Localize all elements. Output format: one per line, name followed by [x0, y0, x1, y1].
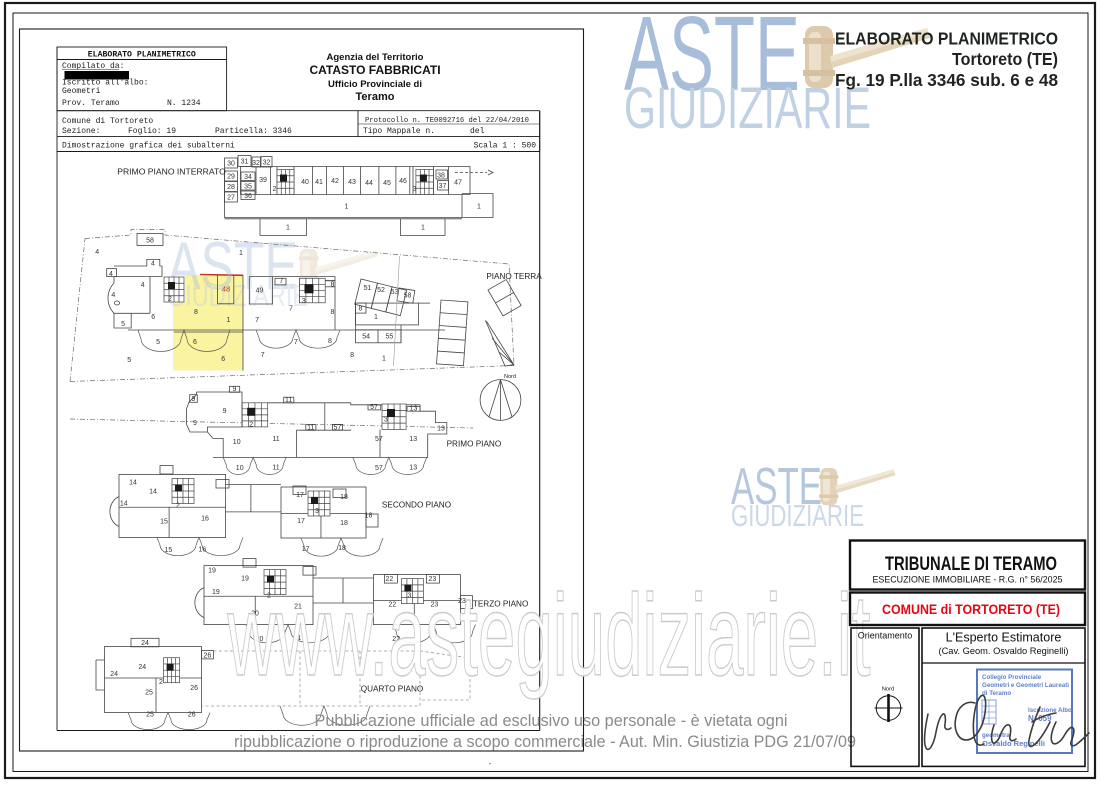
svg-text:57: 57: [375, 465, 383, 472]
svg-text:57: 57: [375, 436, 383, 443]
svg-text:Tipo Mappale n.: Tipo Mappale n.: [363, 127, 435, 136]
svg-text:4: 4: [111, 292, 115, 299]
svg-text:28: 28: [227, 184, 235, 191]
svg-text:ELABORATO PLANIMETRICO: ELABORATO PLANIMETRICO: [88, 51, 196, 60]
svg-text:57: 57: [370, 404, 378, 411]
svg-text:7: 7: [294, 339, 298, 346]
svg-text:Geometri: Geometri: [62, 87, 101, 96]
svg-text:5: 5: [127, 357, 131, 364]
svg-text:48: 48: [222, 285, 230, 294]
svg-text:11: 11: [307, 424, 314, 431]
svg-text:11: 11: [272, 436, 279, 443]
svg-text:2: 2: [168, 296, 172, 303]
svg-text:44: 44: [365, 180, 373, 187]
svg-text:4: 4: [141, 282, 145, 289]
svg-text:11: 11: [285, 397, 292, 404]
svg-text:Comune di Tortoreto: Comune di Tortoreto: [62, 117, 153, 126]
svg-text:N. 1234: N. 1234: [167, 99, 201, 108]
svg-text:31: 31: [241, 159, 249, 166]
svg-text:40: 40: [301, 179, 309, 186]
svg-text:9: 9: [193, 420, 197, 427]
svg-text:19: 19: [208, 568, 216, 575]
svg-text:32: 32: [252, 160, 260, 167]
svg-text:3: 3: [384, 417, 388, 424]
svg-text:5: 5: [156, 339, 160, 346]
svg-text:18: 18: [340, 494, 348, 501]
svg-text:1: 1: [239, 250, 243, 257]
svg-text:Orientamento: Orientamento: [858, 631, 913, 641]
svg-text:7: 7: [261, 352, 265, 359]
svg-text:PRIMO PIANO: PRIMO PIANO: [447, 440, 502, 449]
svg-text:TRIBUNALE DI TERAMO: TRIBUNALE DI TERAMO: [885, 553, 1057, 575]
svg-text:Tortoreto (TE): Tortoreto (TE): [952, 49, 1058, 69]
svg-text:15: 15: [165, 547, 173, 554]
svg-text:24: 24: [141, 640, 149, 647]
svg-text:GIUDIZIARIE: GIUDIZIARIE: [624, 76, 871, 141]
svg-text:4: 4: [109, 271, 113, 278]
svg-text:10: 10: [233, 439, 241, 446]
svg-text:30: 30: [227, 161, 235, 168]
svg-text:49: 49: [256, 288, 264, 295]
svg-text:7: 7: [279, 278, 283, 285]
svg-text:PIANO TERRA: PIANO TERRA: [486, 272, 542, 281]
svg-text:Sezione:: Sezione:: [62, 127, 100, 136]
svg-text:Geometri e Geometri Laureati: Geometri e Geometri Laureati: [982, 682, 1069, 689]
svg-text:1: 1: [345, 204, 349, 211]
svg-text:26: 26: [188, 711, 196, 718]
svg-text:GIUDIZIARIE: GIUDIZIARIE: [167, 279, 308, 313]
svg-text:27: 27: [227, 195, 235, 202]
svg-text:5: 5: [121, 321, 125, 328]
svg-text:di Teramo: di Teramo: [982, 690, 1011, 697]
svg-text:25: 25: [145, 690, 153, 697]
svg-text:3: 3: [302, 298, 306, 305]
svg-text:16: 16: [201, 516, 209, 523]
svg-text:3: 3: [413, 186, 417, 193]
svg-text:9: 9: [223, 408, 227, 415]
svg-text:Teramo: Teramo: [356, 91, 395, 103]
svg-text:3: 3: [315, 508, 319, 515]
svg-text:57: 57: [334, 424, 342, 431]
svg-text:8: 8: [350, 352, 354, 359]
svg-text:Pubblicazione ufficiale ad esc: Pubblicazione ufficiale ad esclusivo uso…: [315, 711, 788, 730]
svg-text:Agenzia del Territorio: Agenzia del Territorio: [327, 52, 424, 63]
svg-text:1: 1: [374, 314, 378, 321]
svg-text:47: 47: [454, 180, 462, 187]
svg-text:8: 8: [331, 282, 335, 289]
svg-text:10: 10: [236, 465, 244, 472]
svg-text:6: 6: [221, 356, 225, 363]
svg-text:Iscrizione Albo: Iscrizione Albo: [1028, 707, 1072, 714]
svg-text:17: 17: [296, 492, 304, 499]
svg-text:58: 58: [146, 238, 154, 245]
svg-text:Foglio: 19: Foglio: 19: [128, 127, 176, 136]
svg-text:2: 2: [249, 422, 253, 429]
svg-text:19: 19: [212, 589, 220, 596]
svg-text:ripubblicazione o riproduzione: ripubblicazione o riproduzione a scopo c…: [234, 732, 856, 751]
svg-text:18: 18: [365, 513, 373, 520]
svg-text:55: 55: [386, 334, 394, 341]
svg-text:9: 9: [233, 386, 237, 393]
svg-text:36: 36: [244, 193, 252, 200]
svg-text:14: 14: [149, 489, 157, 496]
svg-text:14: 14: [120, 501, 128, 508]
svg-text:Particella: 3346: Particella: 3346: [215, 127, 292, 136]
svg-text:9: 9: [192, 396, 196, 403]
svg-text:41: 41: [315, 179, 323, 186]
svg-text:1: 1: [477, 204, 481, 211]
svg-text:34: 34: [244, 174, 252, 181]
svg-text:ESECUZIONE IMMOBILIARE - R.G.: ESECUZIONE IMMOBILIARE - R.G. n° 56/2025: [873, 575, 1063, 586]
svg-text:42: 42: [331, 178, 339, 185]
svg-text:32: 32: [263, 160, 271, 167]
svg-text:geometra: geometra: [982, 732, 1010, 739]
svg-text:43: 43: [348, 179, 356, 186]
svg-text:COMUNE di TORTORETO (TE): COMUNE di TORTORETO (TE): [882, 602, 1060, 617]
svg-text:24: 24: [138, 664, 146, 671]
svg-text:GIUDIZIARIE: GIUDIZIARIE: [731, 499, 864, 533]
svg-text:17: 17: [302, 546, 310, 553]
svg-text:13: 13: [409, 465, 417, 472]
svg-text:Scala 1 : 500: Scala 1 : 500: [474, 142, 537, 151]
svg-text:6: 6: [193, 339, 197, 346]
svg-text:58: 58: [404, 293, 412, 300]
svg-text:54: 54: [362, 334, 370, 341]
svg-text:13: 13: [409, 436, 417, 443]
svg-text:6: 6: [151, 314, 155, 321]
svg-text:29: 29: [227, 174, 235, 181]
svg-text:26: 26: [190, 685, 198, 692]
svg-text:L'Esperto Estimatore: L'Esperto Estimatore: [946, 631, 1062, 645]
svg-text:8: 8: [194, 309, 198, 316]
svg-text:37: 37: [439, 183, 447, 190]
svg-text:35: 35: [244, 184, 252, 191]
svg-text:8: 8: [331, 309, 335, 316]
svg-text:16: 16: [198, 547, 206, 554]
svg-text:1: 1: [421, 225, 425, 232]
svg-text:7: 7: [289, 306, 293, 313]
svg-text:2: 2: [159, 679, 163, 686]
svg-text:Nord: Nord: [882, 687, 895, 693]
svg-text:7: 7: [255, 317, 259, 324]
svg-text:Dimostrazione grafica dei suba: Dimostrazione grafica dei subalterni: [62, 142, 235, 151]
svg-text:Protocollo n. TE0092716 del 22: Protocollo n. TE0092716 del 22/04/2010: [365, 117, 529, 125]
svg-text:PRIMO PIANO INTERRATO: PRIMO PIANO INTERRATO: [117, 167, 226, 177]
svg-text:del: del: [470, 127, 485, 136]
svg-text:13: 13: [410, 406, 418, 413]
svg-text:18: 18: [338, 545, 346, 552]
svg-text:1: 1: [227, 317, 231, 324]
svg-text:18: 18: [340, 520, 348, 527]
svg-text:Nord: Nord: [504, 374, 516, 380]
svg-text:38: 38: [437, 173, 445, 180]
svg-text:Prov. Teramo: Prov. Teramo: [62, 99, 120, 108]
svg-text:45: 45: [383, 180, 391, 187]
svg-text:www.astegiudiziarie.it: www.astegiudiziarie.it: [227, 570, 871, 700]
svg-text:1: 1: [286, 225, 290, 232]
svg-text:8: 8: [328, 338, 332, 345]
svg-text:(Cav. Geom. Osvaldo Reginelli): (Cav. Geom. Osvaldo Reginelli): [938, 646, 1068, 656]
svg-text:51: 51: [364, 285, 372, 292]
svg-text:-: -: [489, 759, 492, 768]
svg-text:17: 17: [297, 518, 305, 525]
svg-text:4: 4: [95, 249, 99, 256]
svg-text:46: 46: [399, 178, 407, 185]
svg-text:14: 14: [129, 480, 137, 487]
svg-text:52: 52: [377, 287, 385, 294]
svg-text:15: 15: [160, 519, 168, 526]
svg-text:ELABORATO PLANIMETRICO: ELABORATO PLANIMETRICO: [835, 29, 1058, 49]
svg-text:8: 8: [359, 306, 363, 313]
svg-text:CATASTO FABBRICATI: CATASTO FABBRICATI: [309, 63, 440, 77]
svg-text:Fg. 19 P.lla 3346 sub. 6 e 48: Fg. 19 P.lla 3346 sub. 6 e 48: [835, 70, 1058, 90]
svg-text:11: 11: [272, 465, 279, 472]
svg-text:1: 1: [382, 356, 386, 363]
svg-text:24: 24: [110, 671, 118, 678]
svg-text:39: 39: [259, 177, 267, 184]
svg-text:4: 4: [151, 260, 155, 267]
svg-text:Ufficio Provinciale di: Ufficio Provinciale di: [328, 79, 422, 90]
svg-text:Collegio Provinciale: Collegio Provinciale: [982, 674, 1042, 681]
svg-text:25: 25: [146, 711, 154, 718]
svg-text:26: 26: [204, 652, 212, 659]
svg-text:2: 2: [273, 186, 277, 193]
svg-text:13: 13: [437, 426, 445, 433]
svg-text:2: 2: [176, 503, 180, 510]
svg-text:SECONDO PIANO: SECONDO PIANO: [382, 501, 451, 510]
